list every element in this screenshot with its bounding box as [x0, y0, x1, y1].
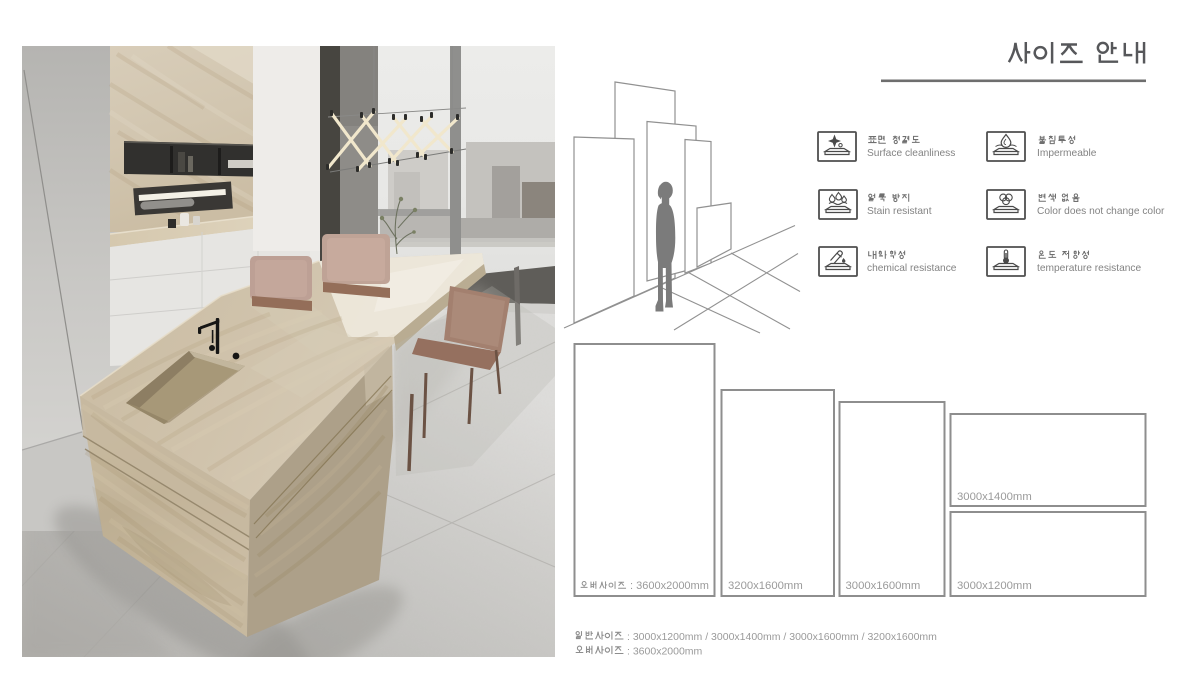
svg-text:: 3600x2000mm: : 3600x2000mm — [630, 580, 709, 592]
svg-text:temperature resistance: temperature resistance — [1037, 263, 1142, 274]
svg-text:chemical resistance: chemical resistance — [867, 263, 957, 274]
svg-text:: 3000x1200mm / 3000x1400mm /: : 3000x1200mm / 3000x1400mm / 3000x1600m… — [627, 631, 937, 643]
svg-text:Color does not change color: Color does not change color — [1037, 206, 1165, 217]
svg-text:3000x1400mm: 3000x1400mm — [957, 491, 1032, 503]
svg-text:3000x1200mm: 3000x1200mm — [957, 580, 1032, 592]
svg-text:Stain resistant: Stain resistant — [867, 206, 932, 217]
svg-text:3200x1600mm: 3200x1600mm — [728, 580, 803, 592]
svg-text:: 3600x2000mm: : 3600x2000mm — [627, 646, 703, 658]
svg-text:Impermeable: Impermeable — [1037, 148, 1097, 159]
svg-text:Surface cleanliness: Surface cleanliness — [867, 148, 955, 159]
svg-text:3000x1600mm: 3000x1600mm — [846, 580, 921, 592]
